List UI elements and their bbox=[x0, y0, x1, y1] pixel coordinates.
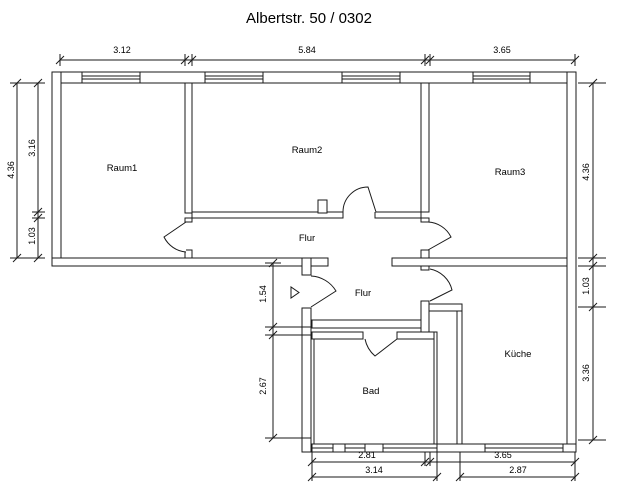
dim-top-2: 5.84 bbox=[298, 45, 316, 55]
door-raum2 bbox=[343, 187, 376, 212]
dim-bottom-inner-2: 3.65 bbox=[494, 450, 512, 460]
room-label-flur-upper: Flur bbox=[299, 233, 315, 244]
chimney-notch bbox=[318, 200, 327, 213]
room-labels: Raum1 Raum2 Raum3 Flur Flur Bad Küche bbox=[107, 145, 532, 397]
room-label-bad: Bad bbox=[363, 386, 380, 397]
dim-left-total: 4.36 bbox=[6, 161, 16, 179]
window-raum1 bbox=[82, 72, 140, 83]
window-raum2-left bbox=[205, 72, 263, 83]
window-bad-1 bbox=[312, 444, 333, 452]
room-label-raum1: Raum1 bbox=[107, 163, 138, 174]
dim-top-3: 3.65 bbox=[493, 45, 511, 55]
dim-left-upper: 3.16 bbox=[27, 139, 37, 157]
door-raum3 bbox=[428, 222, 451, 250]
door-entrance bbox=[311, 276, 336, 307]
door-bad bbox=[365, 339, 397, 356]
dim-inner-bad: 2.67 bbox=[258, 377, 268, 395]
dim-left-lower: 1.03 bbox=[27, 227, 37, 245]
dim-right-lower: 3.36 bbox=[581, 364, 591, 382]
dim-bottom-inner-1: 2.81 bbox=[358, 450, 376, 460]
dim-right-upper: 4.36 bbox=[581, 163, 591, 181]
floor-plan-canvas: Albertstr. 50 / 0302 Raum1 Raum2 Raum3 F… bbox=[0, 0, 618, 495]
dim-inner-flur: 1.54 bbox=[258, 285, 268, 303]
door-kueche bbox=[430, 269, 452, 301]
room-label-raum3: Raum3 bbox=[495, 167, 526, 178]
door-raum1 bbox=[164, 222, 186, 252]
dim-right-middle: 1.03 bbox=[581, 277, 591, 295]
dim-bottom-outer-1: 3.14 bbox=[365, 465, 383, 475]
room-label-flur-lower: Flur bbox=[355, 288, 371, 299]
floorplan-title: Albertstr. 50 / 0302 bbox=[246, 10, 372, 27]
entrance-arrow-icon bbox=[291, 287, 299, 298]
window-raum2-right bbox=[342, 72, 400, 83]
window-bad-3 bbox=[383, 444, 437, 452]
window-raum3 bbox=[473, 72, 530, 83]
floor-plan-page: Albertstr. 50 / 0302 Raum1 Raum2 Raum3 F… bbox=[0, 0, 618, 495]
dim-bottom-outer-2: 2.87 bbox=[509, 465, 527, 475]
room-label-raum2: Raum2 bbox=[292, 145, 323, 156]
dim-top-1: 3.12 bbox=[113, 45, 131, 55]
room-label-kueche: Küche bbox=[505, 349, 532, 360]
